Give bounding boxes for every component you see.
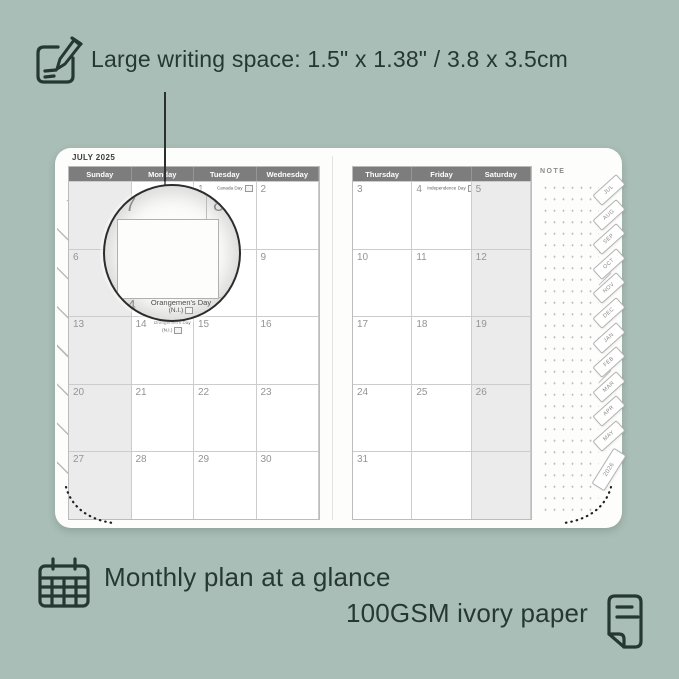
holiday-label: Orangemen's Day(N.I.) xyxy=(154,320,192,334)
date-number: 19 xyxy=(476,319,487,330)
magnified-holiday-label: Orangemen's Day (N.I.) xyxy=(135,298,227,314)
day-header: Monday xyxy=(132,167,195,181)
calendar-cell: 21 xyxy=(132,384,195,452)
date-number: 28 xyxy=(136,454,147,465)
notebook-spine xyxy=(332,156,333,520)
date-number: 25 xyxy=(416,387,427,398)
holiday-line2: (N.I.) xyxy=(135,307,227,314)
calendar-cell: 2 xyxy=(257,181,320,249)
holiday-flag-icon xyxy=(245,185,253,192)
date-number: 12 xyxy=(476,252,487,263)
day-header: Sunday xyxy=(69,167,132,181)
calendar-cell: 31 xyxy=(353,451,412,519)
date-number: 24 xyxy=(357,387,368,398)
top-annotation-text: Large writing space: 1.5" x 1.38" / 3.8 … xyxy=(91,46,568,73)
holiday-label: Canada Day xyxy=(216,185,254,192)
date-number: 18 xyxy=(416,319,427,330)
magnified-writing-space xyxy=(117,219,219,299)
calendar-cell: 29 xyxy=(194,451,257,519)
date-number: 11 xyxy=(416,252,426,263)
date-number: 26 xyxy=(476,387,487,398)
calendar-cell: 19 xyxy=(472,316,531,384)
calendar-cell: 14Orangemen's Day(N.I.) xyxy=(132,316,195,384)
calendar-cell: 10 xyxy=(353,249,412,317)
date-number: 2 xyxy=(261,184,267,195)
holiday-flag-icon xyxy=(185,307,193,314)
note-pencil-icon xyxy=(34,34,84,88)
calendar-cell: 17 xyxy=(353,316,412,384)
holiday-line1: Orangemen's Day xyxy=(135,298,227,307)
calendar-cell: 13 xyxy=(69,316,132,384)
calendar-cell: 12 xyxy=(472,249,531,317)
date-number: 14 xyxy=(136,319,147,330)
calendar-cell: 24 xyxy=(353,384,412,452)
paper-page-icon xyxy=(601,593,645,651)
day-header: Thursday xyxy=(353,167,412,181)
calendar-cell: 16 xyxy=(257,316,320,384)
date-number: 31 xyxy=(357,454,368,465)
magnified-date-7: 7 xyxy=(125,194,136,217)
day-header: Wednesday xyxy=(257,167,320,181)
page-curl-dotted-right xyxy=(560,484,616,526)
calendar-grid-right: ThursdayFridaySaturday34Independence Day… xyxy=(352,166,532,520)
date-number: 3 xyxy=(357,184,363,195)
note-dot-grid xyxy=(538,180,599,518)
date-number: 23 xyxy=(261,387,272,398)
calendar-cell: 18 xyxy=(412,316,471,384)
date-number: 6 xyxy=(73,252,79,263)
calendar-cell: 28 xyxy=(132,451,195,519)
calendar-cell: 22 xyxy=(194,384,257,452)
page-curl-dotted-left xyxy=(61,484,117,526)
calendar-cell: 4Independence Day xyxy=(412,181,471,249)
note-label: NOTE xyxy=(540,168,565,175)
date-number: 5 xyxy=(476,184,482,195)
month-title: JULY 2025 xyxy=(72,153,115,162)
date-number: 17 xyxy=(357,319,368,330)
date-number: 27 xyxy=(73,454,84,465)
calendar-cell: 5 xyxy=(472,181,531,249)
day-header: Saturday xyxy=(472,167,531,181)
date-number: 30 xyxy=(261,454,272,465)
leader-line xyxy=(164,92,166,194)
day-header: Friday xyxy=(412,167,471,181)
calendar-cell: 9 xyxy=(257,249,320,317)
date-number: 10 xyxy=(357,252,368,263)
date-number: 21 xyxy=(136,387,147,398)
planner-notebook: JULY 2025 SundayMondayTuesdayWednesday1C… xyxy=(55,148,622,528)
holiday-flag-icon xyxy=(174,327,182,334)
date-number: 15 xyxy=(198,319,209,330)
day-header: Tuesday xyxy=(194,167,257,181)
date-number: 29 xyxy=(198,454,209,465)
calendar-grid-icon xyxy=(36,556,92,610)
date-number: 4 xyxy=(416,184,422,195)
calendar-cell: 23 xyxy=(257,384,320,452)
calendar-cell xyxy=(412,451,471,519)
magnified-date-8: 8 xyxy=(213,194,224,217)
monthly-annotation-text: Monthly plan at a glance xyxy=(104,562,391,593)
calendar-cell: 30 xyxy=(257,451,320,519)
date-number: 13 xyxy=(73,319,84,330)
magnified-date-14: 14 xyxy=(119,297,136,314)
calendar-cell: 20 xyxy=(69,384,132,452)
holiday-label: Independence Day xyxy=(434,185,468,192)
calendar-cell: 11 xyxy=(412,249,471,317)
date-number: 9 xyxy=(261,252,267,263)
calendar-cell: 3 xyxy=(353,181,412,249)
date-number: 16 xyxy=(261,319,272,330)
paper-annotation-text: 100GSM ivory paper xyxy=(346,598,588,629)
calendar-cell: 26 xyxy=(472,384,531,452)
calendar-cell: 25 xyxy=(412,384,471,452)
calendar-cell: 15 xyxy=(194,316,257,384)
date-number: 22 xyxy=(198,387,209,398)
magnifier-circle: 7 8 14 Orangemen's Day (N.I.) xyxy=(103,184,241,322)
calendar-cell xyxy=(472,451,531,519)
date-number: 20 xyxy=(73,387,84,398)
product-infographic: Large writing space: 1.5" x 1.38" / 3.8 … xyxy=(0,0,679,679)
